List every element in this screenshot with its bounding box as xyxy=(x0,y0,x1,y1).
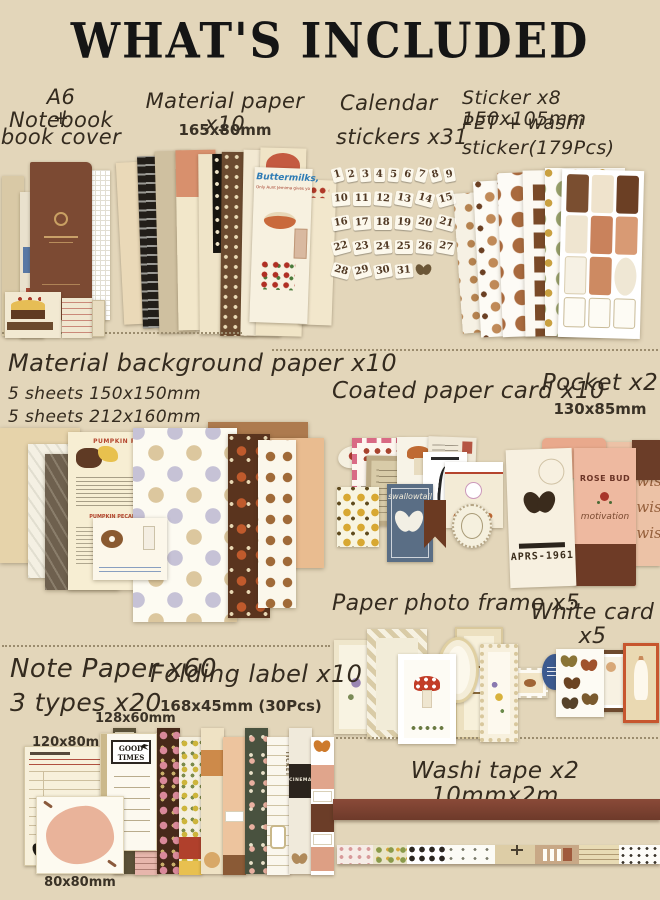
block-decor xyxy=(311,765,334,789)
washi-tape-patterned xyxy=(337,845,660,864)
frame-inner xyxy=(488,652,510,734)
material-paper-size: 165x80mm xyxy=(125,121,325,139)
pocket-label: Pocket x2 xyxy=(540,371,660,396)
grass-decor xyxy=(410,724,444,732)
ad-subheading: Only Aunt Jemima gives you xyxy=(256,184,310,191)
buttermilk-ad-card: Buttermilks, Only Aunt Jemima gives you xyxy=(249,167,312,324)
mushroom-cap xyxy=(414,676,440,691)
butterfly-icon xyxy=(562,697,578,709)
bottle-decor xyxy=(563,848,572,861)
block-decor xyxy=(223,855,246,875)
calendar-sticker-grid: 1234567891011121314151617181920212223242… xyxy=(332,168,460,320)
butterfly-icon xyxy=(581,659,597,671)
calendar-number-sticker: 27 xyxy=(436,239,456,256)
caption-box xyxy=(225,811,244,822)
calendar-label-line1: Calendar xyxy=(340,92,438,115)
art-nouveau-poster-card xyxy=(623,643,659,723)
ticket-text: TICKET xyxy=(267,751,290,777)
paper-tag xyxy=(92,300,105,337)
butterfly-icon xyxy=(416,264,431,275)
rose-icon xyxy=(600,492,609,501)
cake-card xyxy=(5,292,61,338)
block-decor xyxy=(311,847,334,871)
sketch-frame xyxy=(45,805,115,865)
butterfly-icon xyxy=(564,677,580,689)
washi-tape-segment xyxy=(407,845,445,864)
butterfly-icon xyxy=(292,853,307,864)
ad-heading: Buttermilks, xyxy=(256,172,310,184)
folding-label-title: Folding label x10 xyxy=(150,662,362,688)
folding-label-strip xyxy=(179,737,202,875)
chef-face xyxy=(465,482,482,499)
sticker-label-line2: PET + washi xyxy=(462,113,584,134)
ledger-rule xyxy=(29,764,101,765)
label-strip xyxy=(519,542,565,549)
cake-decor xyxy=(7,322,53,330)
dragonfly-segment xyxy=(495,845,535,864)
caption-box xyxy=(313,791,332,802)
pennant-card xyxy=(424,500,446,548)
sticker-label-line3: sticker(179Pcs) xyxy=(462,138,614,159)
monarch-butterfly-icon xyxy=(314,740,330,752)
calendar-number-sticker: 9 xyxy=(443,167,456,183)
date-code: APRS-1961 xyxy=(509,550,575,563)
notebook-label-line2: book cover xyxy=(0,126,122,149)
lady-figure xyxy=(634,660,648,700)
label-sticker-row xyxy=(563,297,636,329)
washi-tape-segment xyxy=(445,845,495,864)
folding-label-strip xyxy=(223,737,246,875)
sticker-grid xyxy=(564,174,639,296)
folding-label-size: 168x45mm (30Pcs) xyxy=(160,697,322,715)
calendar-number-sticker: 20 xyxy=(415,215,435,232)
food-decor xyxy=(524,679,536,687)
pocket-corner xyxy=(632,440,660,480)
pocket-size: 130x85mm xyxy=(540,400,660,418)
calendar-number-sticker: 22 xyxy=(330,238,351,256)
calendar-number-sticker: 29 xyxy=(351,262,372,280)
teddy-decor xyxy=(204,852,220,868)
sticker-sheet-front xyxy=(558,169,644,339)
square-note-paper xyxy=(36,796,124,874)
notebook-title-line xyxy=(44,236,78,238)
rose-bud-pocket: ROSE BUD motivation xyxy=(574,448,636,586)
poster-inner xyxy=(626,646,656,720)
donut-illustration xyxy=(101,530,123,548)
folding-label-strip xyxy=(245,728,268,874)
block-decor xyxy=(201,750,224,776)
mushroom-photo-frame xyxy=(398,654,456,744)
calendar-number-sticker: 26 xyxy=(415,239,434,255)
portrait-decor xyxy=(606,662,616,672)
pocket-card-script: motivation xyxy=(574,512,636,522)
package-illustration xyxy=(294,228,308,258)
white-card-label: White card x5 xyxy=(525,601,660,649)
calendar-number-sticker: 24 xyxy=(373,239,392,255)
dotted-divider xyxy=(2,645,330,647)
butterfly-icon xyxy=(582,693,598,705)
butterfly-pocket-card: APRS-1961 xyxy=(506,448,577,588)
stamp-ring xyxy=(461,513,483,539)
calendar-number-sticker: 30 xyxy=(373,263,393,280)
butterfly-pattern-card xyxy=(337,487,379,547)
berry-illustration xyxy=(258,259,295,290)
block-decor xyxy=(179,861,202,875)
calendar-number-sticker: 23 xyxy=(352,239,372,256)
mushroom-stem xyxy=(422,690,432,708)
calendar-number-sticker: 2 xyxy=(345,167,358,183)
butterfly-icon xyxy=(561,655,577,667)
script-line xyxy=(99,564,161,572)
calendar-number-sticker: 25 xyxy=(395,240,413,254)
corner-doodle xyxy=(43,800,53,808)
folding-label-strip xyxy=(311,737,334,875)
calendar-number-sticker: 3 xyxy=(359,168,371,183)
washi-tape-brown xyxy=(333,799,660,820)
pad-title: GOOD TIMES xyxy=(111,740,151,764)
calendar-number-sticker: 4 xyxy=(374,168,385,182)
folding-label-strip xyxy=(201,728,224,874)
calendar-number-sticker: 14 xyxy=(414,190,435,208)
mini-recipe-card xyxy=(93,518,167,580)
cinema-text: CINEMA xyxy=(289,764,312,798)
floral-photo-frame xyxy=(480,644,518,742)
notebook-emblem xyxy=(54,212,68,226)
calendar-number-sticker: 19 xyxy=(394,215,413,231)
ledger-title-line xyxy=(30,752,70,755)
folding-label-strip xyxy=(157,728,180,874)
cake-decor xyxy=(11,300,45,310)
calendar-number-sticker: 13 xyxy=(394,191,414,208)
calendar-number-sticker: 17 xyxy=(352,215,371,231)
block-decor xyxy=(311,804,334,832)
milk-glass-illustration xyxy=(143,526,155,550)
product-infographic: WHAT'S INCLUDED A6 Notebook + book cover… xyxy=(0,0,660,900)
notebook-title-line xyxy=(49,242,73,243)
calendar-number-sticker: 7 xyxy=(414,167,428,183)
pocket-card-title: ROSE BUD xyxy=(574,474,636,483)
butterfly-icon xyxy=(396,510,422,532)
food-illustration xyxy=(264,211,297,229)
pocket-band xyxy=(574,544,636,586)
note-size-80: 80x80mm xyxy=(36,875,124,890)
bottles-segment xyxy=(535,845,579,864)
leaf-paper-sheet xyxy=(258,440,296,608)
block-decor xyxy=(179,837,202,859)
washi-tape-segment xyxy=(579,845,619,864)
corner-doodle xyxy=(107,859,117,867)
calendar-number-sticker: 1 xyxy=(330,167,344,183)
butterfly-specimen-card xyxy=(556,649,604,717)
clock-decor xyxy=(538,458,565,485)
calendar-number-sticker: 18 xyxy=(374,216,392,230)
calendar-number-sticker: 10 xyxy=(331,191,350,207)
ticket-label-strip: TICKET xyxy=(267,737,290,875)
calendar-number-sticker: 31 xyxy=(394,263,413,279)
dragonfly-icon xyxy=(511,849,523,851)
cinema-label-strip: CINEMA xyxy=(289,728,312,874)
oval-stamp-card xyxy=(452,504,492,548)
notebook-title-line xyxy=(42,284,80,285)
calendar-number-sticker: 16 xyxy=(331,215,351,232)
butterfly-icon xyxy=(524,491,555,514)
ledger-rule xyxy=(29,759,101,760)
calendar-number-sticker: 5 xyxy=(387,168,399,183)
calendar-number-sticker: 8 xyxy=(428,167,442,183)
calendar-number-sticker: 6 xyxy=(401,167,414,183)
heading-line xyxy=(431,457,459,460)
calendar-number-sticker: 21 xyxy=(435,214,456,232)
washi-tape-segment xyxy=(373,845,407,864)
frame-decor xyxy=(270,825,286,849)
card-header xyxy=(445,462,503,474)
washi-tape-segment xyxy=(619,845,660,864)
vintage-card xyxy=(62,298,92,338)
calendar-number-sticker: 12 xyxy=(373,191,392,207)
card-script: swallowtail xyxy=(387,492,433,501)
mushroom-stem xyxy=(414,458,423,475)
background-paper-label: Material background paper x10 xyxy=(8,351,397,377)
calendar-label-line2: stickers x31 xyxy=(336,126,468,149)
cake-decor xyxy=(11,310,45,319)
calendar-number-sticker: 11 xyxy=(353,192,371,206)
page-title: WHAT'S INCLUDED xyxy=(0,13,660,69)
frame-inner xyxy=(404,660,450,738)
washi-tape-segment xyxy=(337,845,373,864)
calendar-number-sticker: 28 xyxy=(330,262,351,280)
caption-box xyxy=(313,834,332,845)
background-paper-size2: 5 sheets 212x160mm xyxy=(8,408,201,426)
grid-paper-sheet xyxy=(90,170,110,320)
background-paper-size1: 5 sheets 150x150mm xyxy=(8,385,201,403)
